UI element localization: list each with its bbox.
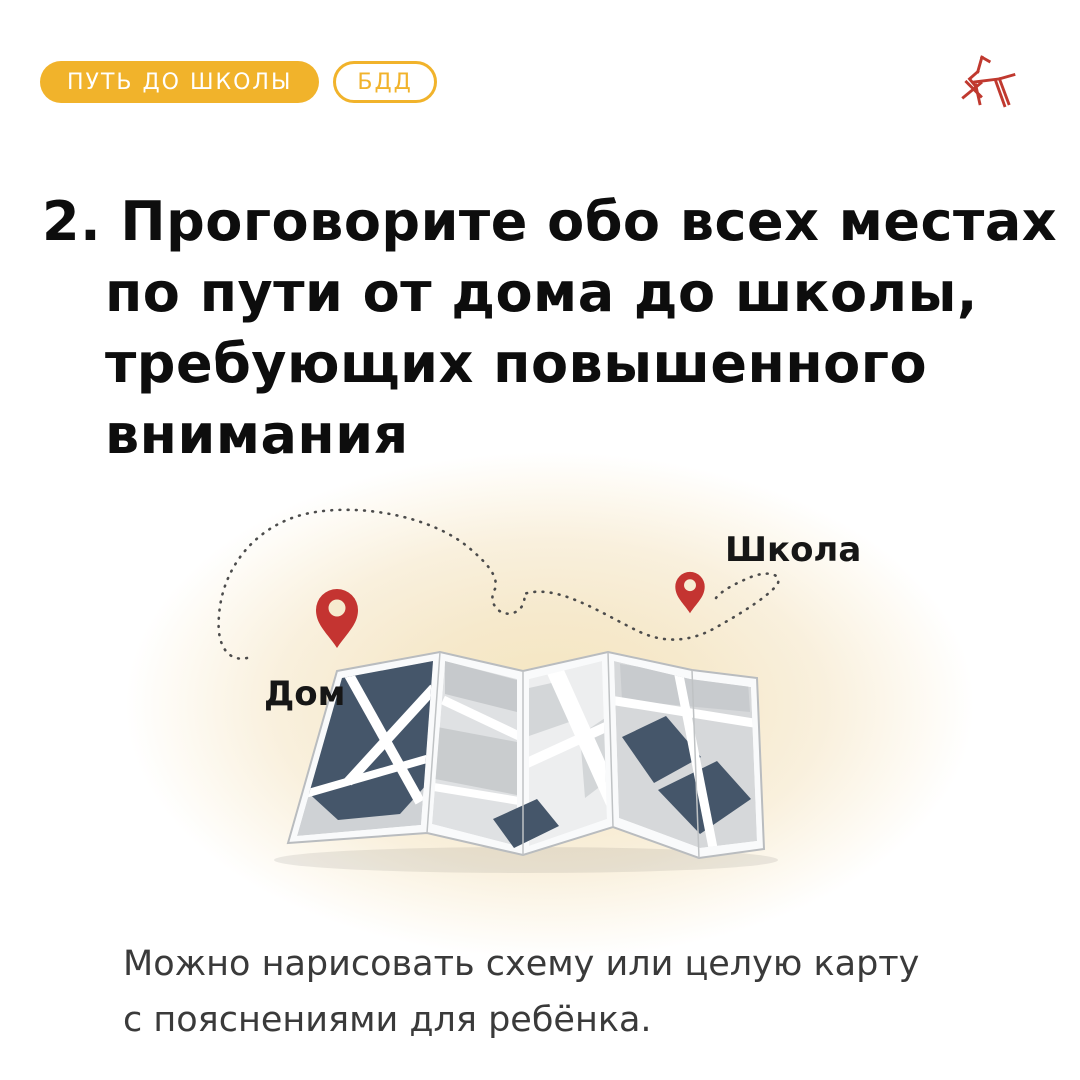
page-title: 2. Проговорите обо всех местах по пути о… [42,186,1057,470]
map-panel-3 [525,661,614,846]
school-pin-icon [675,572,704,613]
folded-map-outline [288,652,764,858]
title-line-4: внимания [105,399,1057,470]
dotted-route-path [219,510,779,659]
caption-line-2: с пояснениями для ребёнка. [123,992,919,1048]
topic-badge: ПУТЬ ДО ШКОЛЫ [40,61,319,103]
map-fold-lines [427,652,699,858]
horse-sketch-icon [954,50,1016,116]
map-shadow [274,847,778,873]
route-map-illustration [0,0,1080,1080]
header-badges: ПУТЬ ДО ШКОЛЫ БДД [40,61,437,103]
map-panel-4 [610,660,760,848]
infographic-card: ПУТЬ ДО ШКОЛЫ БДД 2. Проговорите обо все… [0,0,1080,1080]
home-pin-icon [316,589,358,648]
caption-line-1: Можно нарисовать схему или целую карту [123,936,919,992]
map-panel-2 [428,661,519,846]
title-line-1: 2. Проговорите обо всех местах [42,186,1057,257]
title-line-2: по пути от дома до школы, [105,257,1057,328]
title-line-3: требующих повышенного [105,328,1057,399]
school-label: Школа [725,530,861,570]
home-label: Дом [264,674,345,714]
bdd-badge: БДД [333,61,436,103]
caption-text: Можно нарисовать схему или целую карту с… [123,936,919,1048]
map-dark-block [493,799,559,848]
